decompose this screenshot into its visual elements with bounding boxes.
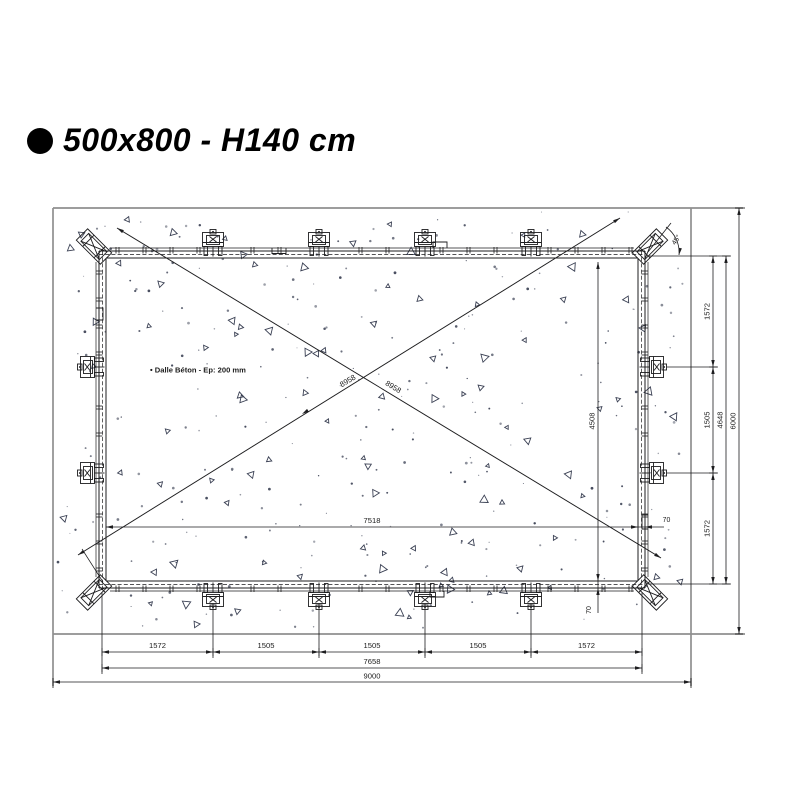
page: 500x800 - H140 cm bbox=[0, 0, 800, 800]
dim-label-bottom-seg1: 1572 bbox=[149, 641, 166, 650]
dim-label-offset-right: 70 bbox=[663, 517, 671, 524]
corner-brackets bbox=[76, 229, 667, 610]
dim-label-bottom-seg3: 1505 bbox=[364, 641, 381, 650]
wall-step-details bbox=[96, 242, 648, 597]
panel-clamps bbox=[78, 230, 667, 610]
technical-drawing: 1572 1505 1505 1505 1572 7658 9000 1572 … bbox=[0, 0, 800, 800]
dim-label-offset-bottom: 70 bbox=[586, 606, 593, 614]
dim-label-bottom-seg5: 1572 bbox=[578, 641, 595, 650]
dim-label-inner-height: 4508 bbox=[588, 413, 597, 430]
dimension-lines bbox=[53, 208, 743, 686]
dim-label-right-seg2: 1505 bbox=[703, 412, 712, 429]
dim-label-bottom-seg4: 1505 bbox=[470, 641, 487, 650]
dim-label-right-subtotal: 4648 bbox=[716, 412, 725, 429]
dim-label-bottom-total: 9000 bbox=[364, 672, 381, 681]
dim-label-inner-width: 7518 bbox=[364, 516, 381, 525]
dim-label-right-seg3: 1572 bbox=[703, 520, 712, 537]
slab-material-note: • Dalle Béton - Ep: 200 mm bbox=[150, 366, 246, 375]
dim-label-right-total: 6000 bbox=[729, 413, 738, 430]
dim-label-bottom-seg2: 1505 bbox=[258, 641, 275, 650]
dim-label-bottom-subtotal: 7658 bbox=[364, 657, 381, 666]
diagonal-check-lines bbox=[78, 218, 661, 582]
dim-label-right-seg1: 1572 bbox=[703, 303, 712, 320]
dim-label-diagonal-right: 8958 bbox=[384, 379, 403, 396]
dim-label-corner-angle: 45° bbox=[670, 233, 683, 246]
dim-label-diagonal-left: 8958 bbox=[338, 373, 357, 389]
